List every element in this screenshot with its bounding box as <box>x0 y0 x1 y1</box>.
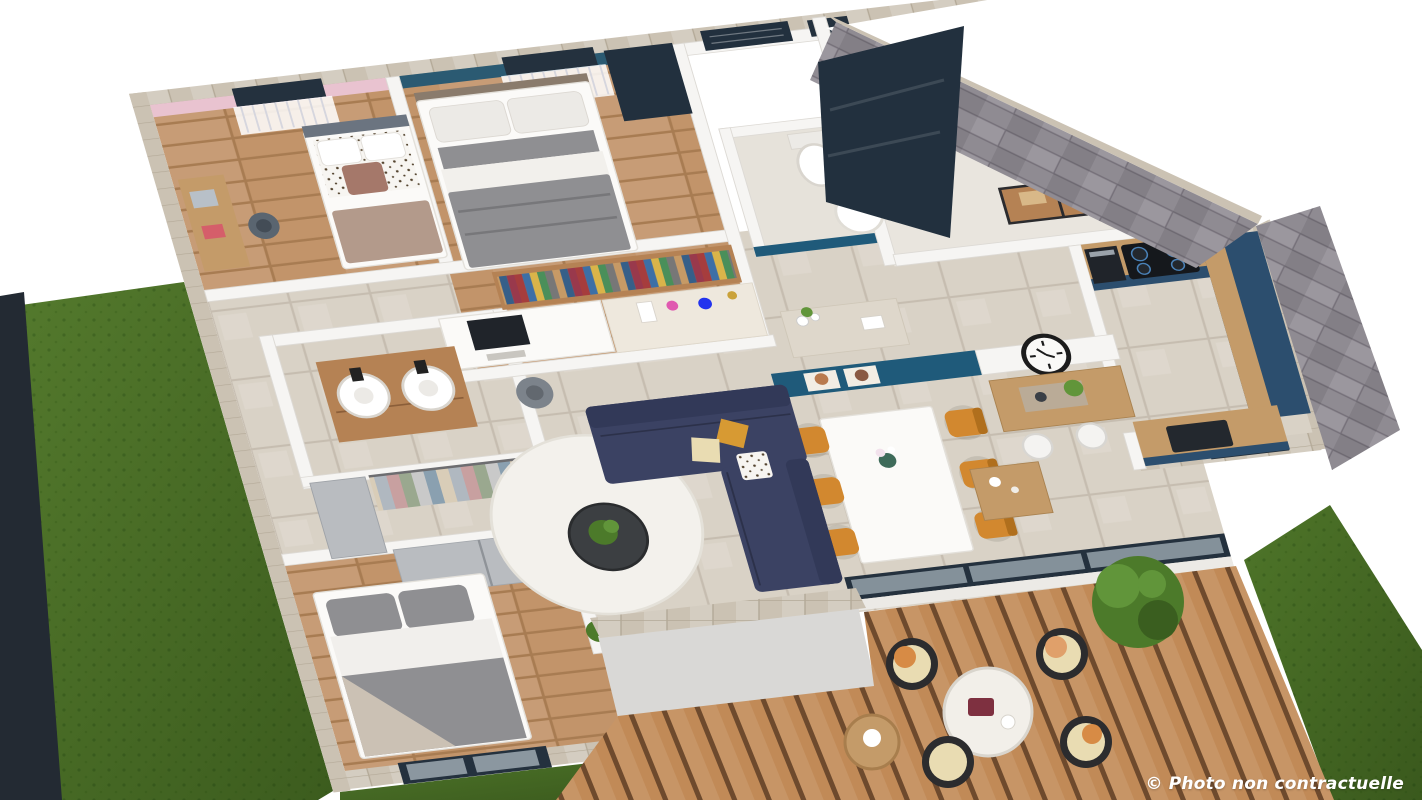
scene <box>0 0 1422 800</box>
lantern <box>863 729 881 747</box>
accent-cushion <box>341 161 390 195</box>
side-console <box>970 462 1053 521</box>
blanket <box>331 200 443 264</box>
monitor <box>467 315 531 351</box>
bush <box>1092 556 1184 648</box>
floor-plan-render: © Photo non contractuelle <box>0 0 1422 800</box>
tray <box>968 698 994 716</box>
bathroom <box>316 346 478 442</box>
copyright-caption: © Photo non contractuelle <box>1145 774 1404 794</box>
laptop <box>189 189 219 208</box>
